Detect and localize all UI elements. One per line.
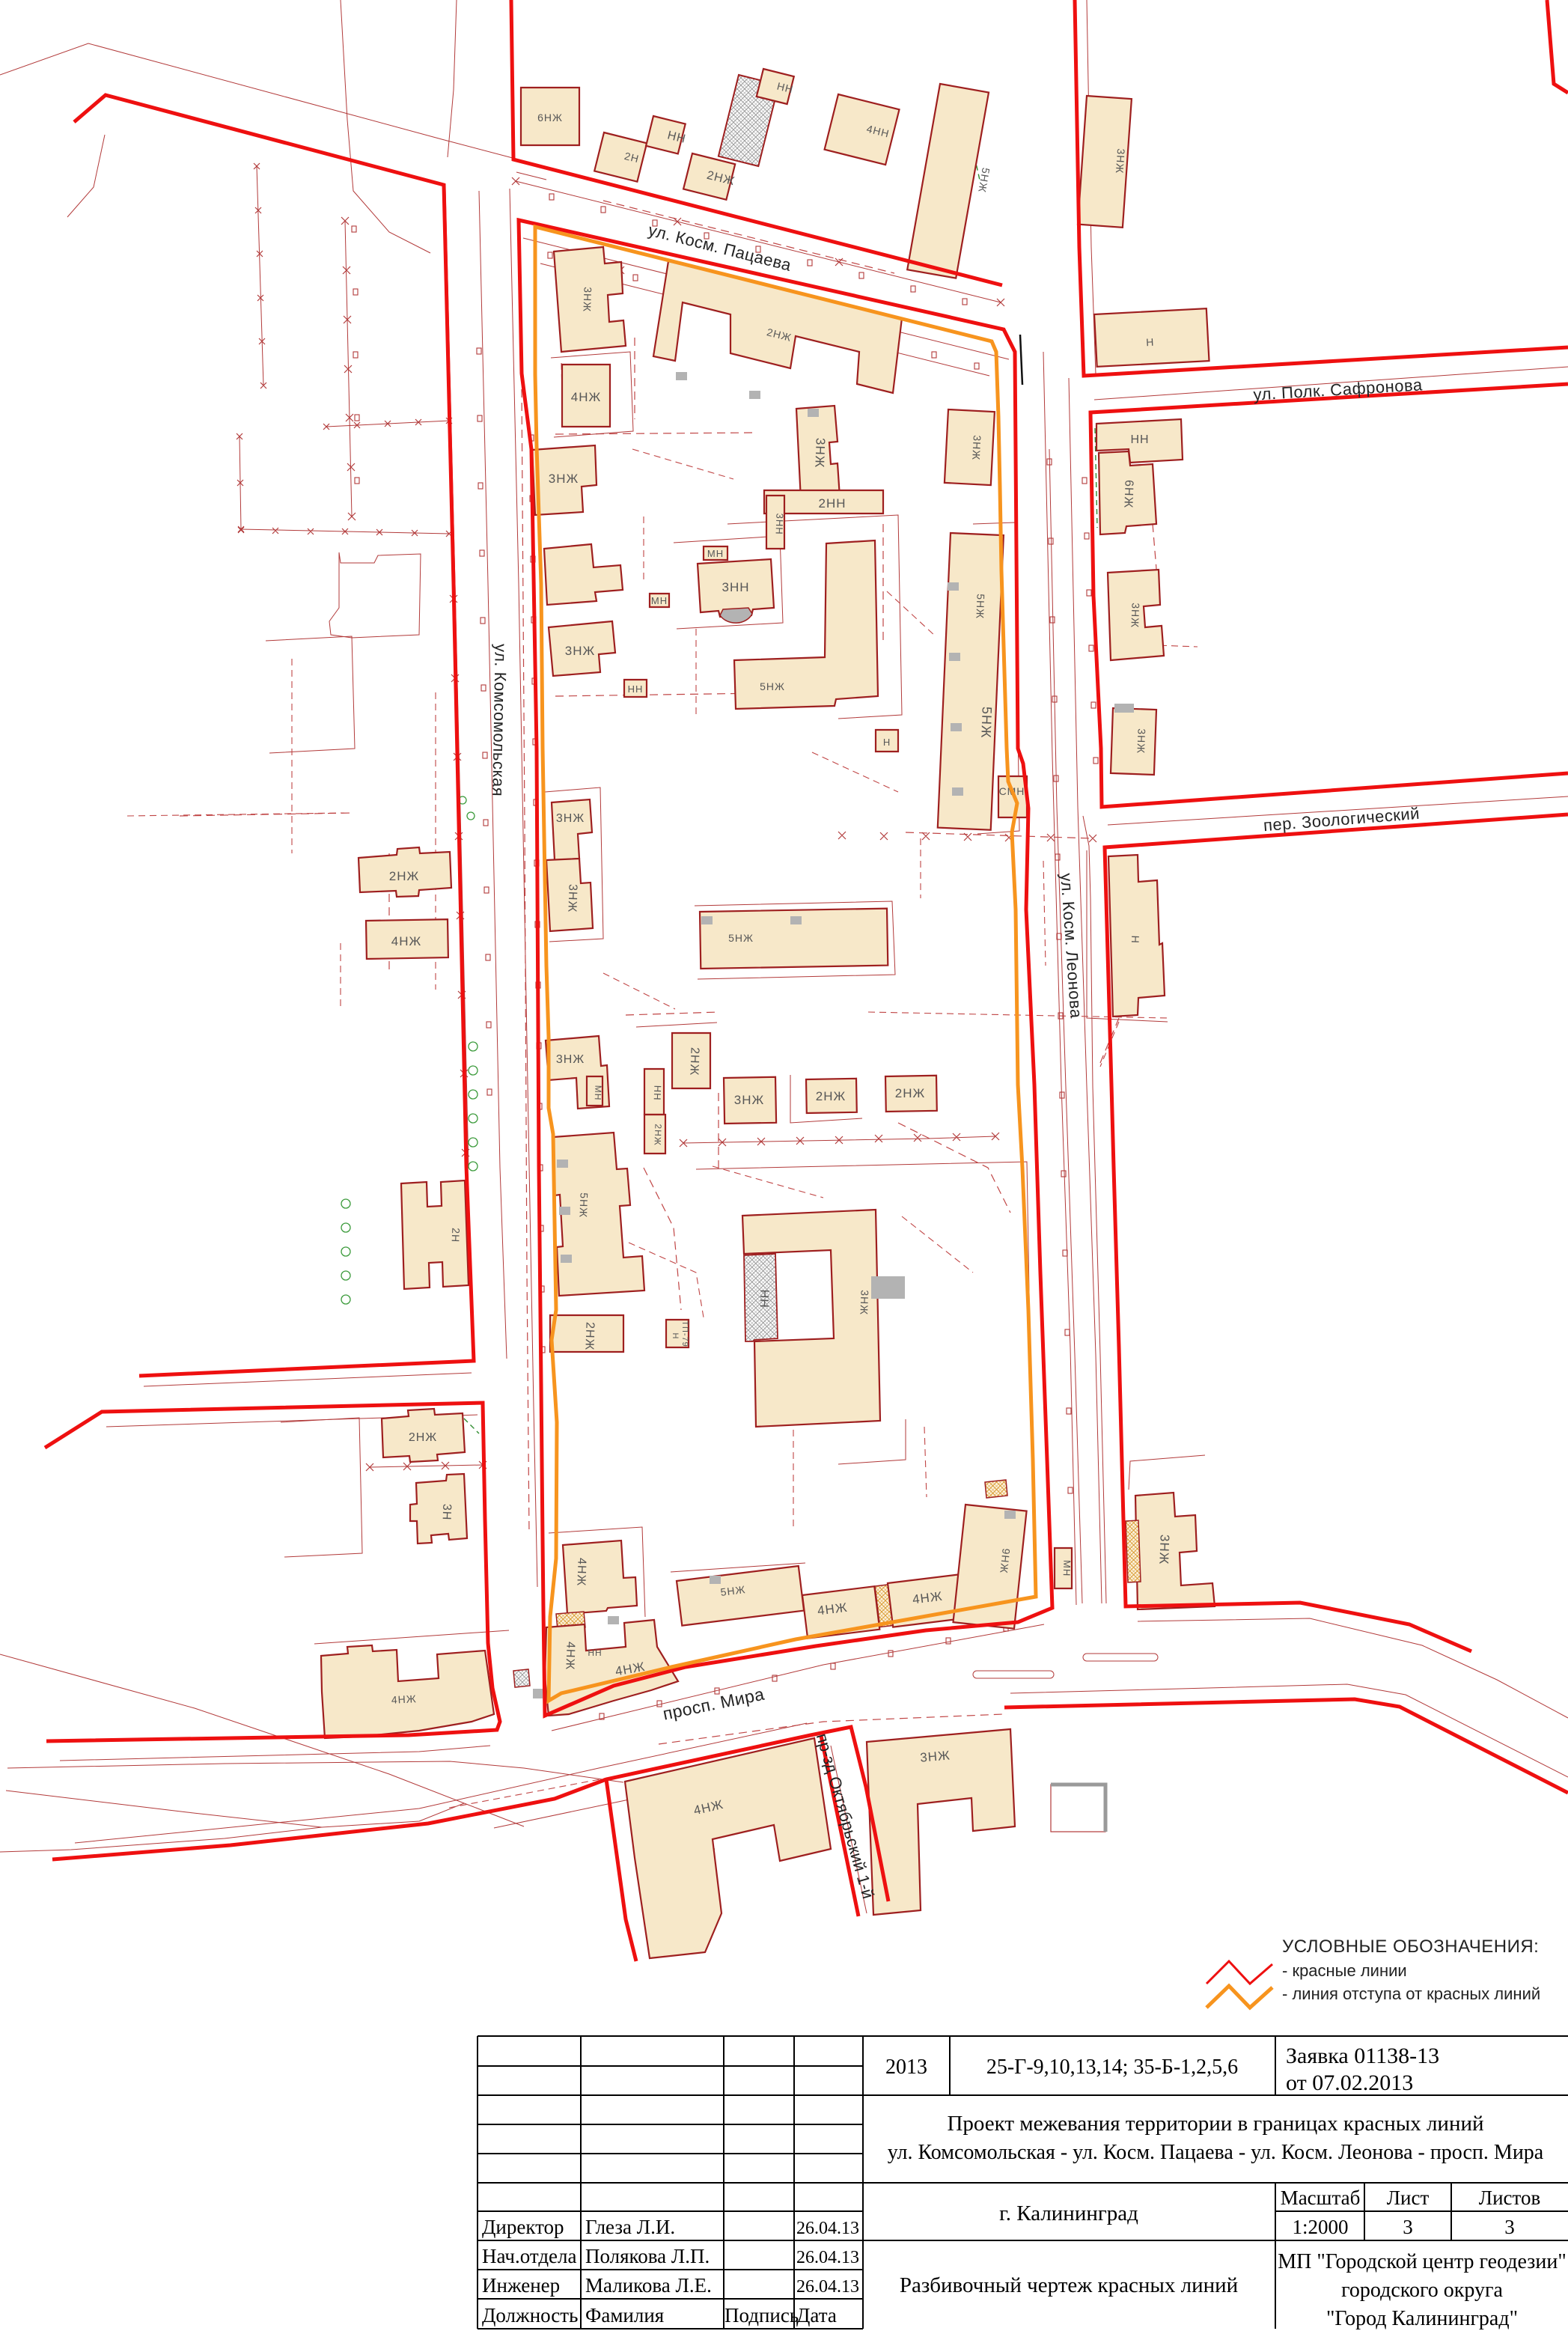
svg-text:МН: МН	[1061, 1560, 1073, 1577]
svg-text:3НЖ: 3НЖ	[1156, 1535, 1171, 1565]
svg-text:3НЖ: 3НЖ	[549, 472, 579, 486]
svg-text:3: 3	[1504, 2216, 1515, 2238]
svg-text:2Н: 2Н	[450, 1228, 463, 1243]
svg-text:Разбивочный чертеж красных лин: Разбивочный чертеж красных линий	[900, 2273, 1238, 2297]
svg-text:Листов: Листов	[1479, 2187, 1540, 2209]
svg-text:Проект межевания территории в: Проект межевания территории в границах к…	[947, 2112, 1483, 2136]
svg-text:городского округа: городского округа	[1341, 2279, 1503, 2302]
svg-text:4НЖ: 4НЖ	[391, 934, 421, 948]
svg-text:2НН: 2НН	[818, 496, 846, 511]
svg-text:5НЖ: 5НЖ	[978, 707, 994, 739]
svg-text:5НЖ: 5НЖ	[577, 1192, 590, 1218]
svg-text:НН: НН	[628, 683, 644, 695]
svg-text:Нач.отдела: Нач.отдела	[482, 2245, 577, 2267]
svg-text:2НЖ: 2НЖ	[582, 1322, 596, 1351]
svg-text:25-Г-9,10,13,14; 35-Б-1,2,5,6: 25-Г-9,10,13,14; 35-Б-1,2,5,6	[986, 2056, 1238, 2079]
svg-text:МН: МН	[651, 595, 668, 606]
svg-text:"Город Калининград": "Город Калининград"	[1326, 2307, 1518, 2330]
svg-text:2НЖ: 2НЖ	[816, 1089, 846, 1103]
svg-text:4НЖ: 4НЖ	[571, 390, 601, 404]
svg-text:2НЖ: 2НЖ	[895, 1086, 925, 1100]
svg-text:3НЖ: 3НЖ	[1114, 148, 1127, 174]
svg-text:3НЖ: 3НЖ	[1135, 728, 1147, 754]
svg-text:Должность: Должность	[482, 2304, 578, 2327]
svg-text:2013: 2013	[885, 2056, 927, 2079]
svg-text:3НЖ: 3НЖ	[565, 644, 595, 658]
svg-text:6НЖ: 6НЖ	[537, 112, 563, 124]
svg-text:МН: МН	[593, 1085, 604, 1101]
svg-text:3НН: 3НН	[773, 513, 785, 535]
svg-text:Масштаб: Масштаб	[1281, 2187, 1361, 2209]
svg-text:3НЖ: 3НЖ	[920, 1748, 951, 1764]
svg-text:6НЖ: 6НЖ	[1121, 480, 1135, 509]
svg-text:Лист: Лист	[1387, 2187, 1430, 2209]
svg-text:5НЖ: 5НЖ	[974, 594, 986, 619]
svg-text:от 07.02.2013: от 07.02.2013	[1286, 2071, 1413, 2095]
svg-text:3НЖ: 3НЖ	[858, 1290, 870, 1315]
svg-text:5НЖ: 5НЖ	[760, 680, 785, 692]
svg-text:Н: Н	[1146, 336, 1155, 349]
svg-text:Н: Н	[883, 737, 891, 748]
svg-text:3НЖ: 3НЖ	[556, 812, 585, 825]
svg-text:1:2000: 1:2000	[1292, 2216, 1348, 2238]
svg-text:НН: НН	[1130, 433, 1149, 446]
svg-text:- красные линии: - красные линии	[1282, 1961, 1407, 1980]
svg-text:3НЖ: 3НЖ	[734, 1093, 764, 1107]
svg-text:Подпись: Подпись	[724, 2304, 799, 2327]
svg-text:НН: НН	[588, 1648, 602, 1658]
svg-text:5НЖ: 5НЖ	[728, 932, 754, 944]
svg-text:Инженер: Инженер	[482, 2274, 560, 2297]
svg-text:Директор: Директор	[482, 2216, 564, 2238]
svg-text:26.04.13: 26.04.13	[796, 2277, 859, 2297]
svg-text:3НЖ: 3НЖ	[812, 438, 827, 469]
svg-text:ул. Комсомольская: ул. Комсомольская	[489, 644, 510, 797]
svg-text:Глеза Л.И.: Глеза Л.И.	[585, 2216, 675, 2238]
svg-text:Заявка 01138-13: Заявка 01138-13	[1286, 2044, 1439, 2068]
svg-text:Н: Н	[1129, 935, 1141, 944]
svg-text:Фамилия: Фамилия	[585, 2304, 664, 2327]
svg-text:3НЖ: 3НЖ	[556, 1053, 585, 1066]
svg-text:МН: МН	[707, 548, 724, 559]
svg-text:2НЖ: 2НЖ	[389, 869, 419, 883]
svg-text:2НЖ: 2НЖ	[687, 1047, 701, 1076]
svg-text:3НЖ: 3НЖ	[581, 287, 594, 312]
svg-text:ул. Комсомольская - ул. Косм.: ул. Комсомольская - ул. Косм. Пацаева - …	[888, 2141, 1544, 2164]
svg-text:26.04.13: 26.04.13	[796, 2248, 859, 2267]
svg-text:НН: НН	[652, 1085, 664, 1101]
svg-text:МП "Городской центр геодезии": МП "Городской центр геодезии"	[1278, 2250, 1567, 2273]
svg-text:3Н: 3Н	[440, 1504, 454, 1521]
svg-text:3НЖ: 3НЖ	[970, 435, 983, 461]
svg-text:3НЖ: 3НЖ	[565, 884, 579, 913]
svg-text:НН: НН	[757, 1289, 771, 1308]
svg-text:3НН: 3НН	[722, 580, 749, 594]
svg-text:ТП-79: ТП-79	[680, 1320, 689, 1347]
svg-text:- линия отступа от красных лин: - линия отступа от красных линий	[1282, 1984, 1540, 2003]
svg-text:2НЖ: 2НЖ	[652, 1124, 663, 1146]
svg-text:Маликова Л.Е.: Маликова Л.Е.	[585, 2274, 712, 2297]
svg-text:26.04.13: 26.04.13	[796, 2219, 859, 2238]
svg-text:Дата: Дата	[796, 2304, 837, 2327]
svg-text:г. Калининград: г. Калининград	[999, 2201, 1138, 2225]
svg-text:4НЖ: 4НЖ	[574, 1558, 588, 1587]
svg-text:4НЖ: 4НЖ	[563, 1642, 576, 1671]
svg-text:4НЖ: 4НЖ	[391, 1692, 417, 1706]
svg-text:2НЖ: 2НЖ	[409, 1431, 437, 1444]
svg-text:Н: Н	[671, 1333, 680, 1340]
svg-text:УСЛОВНЫЕ ОБОЗНАЧЕНИЯ:: УСЛОВНЫЕ ОБОЗНАЧЕНИЯ:	[1282, 1937, 1539, 1957]
svg-text:3НЖ: 3НЖ	[1129, 603, 1141, 628]
svg-text:3: 3	[1403, 2216, 1413, 2238]
svg-text:Полякова Л.П.: Полякова Л.П.	[585, 2245, 710, 2267]
